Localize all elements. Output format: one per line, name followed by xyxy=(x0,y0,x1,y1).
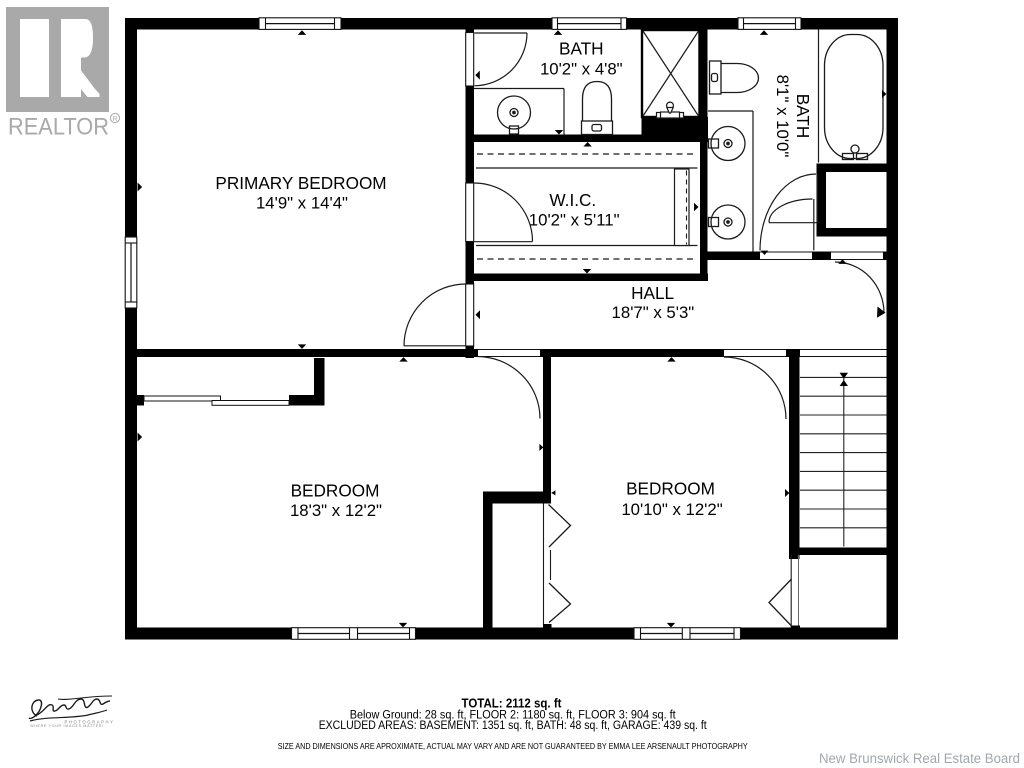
svg-text:BATH: BATH xyxy=(793,94,813,139)
svg-text:BEDROOM: BEDROOM xyxy=(291,481,380,501)
svg-text:R: R xyxy=(112,116,117,123)
svg-text:WHERE YOUR IMAGES MATTER!: WHERE YOUR IMAGES MATTER! xyxy=(30,724,104,728)
svg-text:BEDROOM: BEDROOM xyxy=(626,479,715,499)
svg-text:10'2" x 4'8": 10'2" x 4'8" xyxy=(540,59,623,78)
svg-text:8'1" x 10'0": 8'1" x 10'0" xyxy=(773,75,792,158)
svg-text:EXCLUDED AREAS: BASEMENT: 1351: EXCLUDED AREAS: BASEMENT: 1351 sq. ft, B… xyxy=(319,718,708,732)
svg-text:New Brunswick Real Estate Boar: New Brunswick Real Estate Board xyxy=(819,751,1020,766)
svg-text:18'3" x 12'2": 18'3" x 12'2" xyxy=(290,501,382,520)
svg-text:10'10" x 12'2": 10'10" x 12'2" xyxy=(621,500,722,519)
svg-text:REALTOR: REALTOR xyxy=(8,114,109,141)
svg-text:BATH: BATH xyxy=(559,39,604,59)
svg-text:PRIMARY BEDROOM: PRIMARY BEDROOM xyxy=(215,173,386,193)
svg-text:18'7" x 5'3": 18'7" x 5'3" xyxy=(612,303,695,322)
svg-text:W.I.C.: W.I.C. xyxy=(549,190,596,210)
svg-text:14'9" x 14'4": 14'9" x 14'4" xyxy=(256,194,348,213)
svg-text:SIZE AND DIMENSIONS ARE APROXI: SIZE AND DIMENSIONS ARE APROXIMATE, ACTU… xyxy=(278,742,749,751)
svg-text:HALL: HALL xyxy=(631,283,674,303)
svg-text:10'2" x 5'11": 10'2" x 5'11" xyxy=(529,211,620,230)
